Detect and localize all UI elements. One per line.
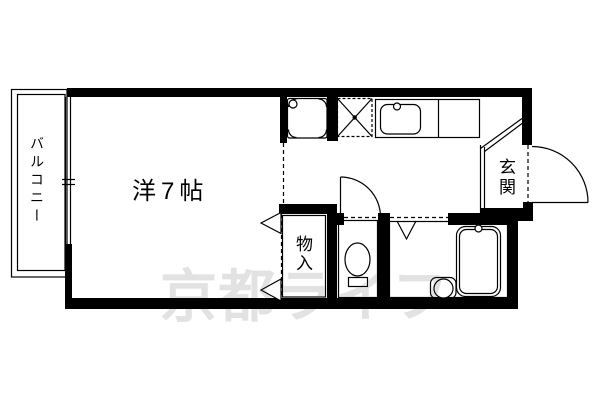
wall-genkan-step-corner <box>523 202 533 209</box>
kitchen-counter-icon <box>376 100 480 138</box>
wall-toilet-stub <box>335 213 344 225</box>
bathtub-icon <box>457 225 501 297</box>
balcony-window-icon <box>62 97 75 244</box>
wall-washer-mid <box>327 97 338 141</box>
kitchen-sink-icon <box>381 103 421 134</box>
washing-machine-pan-icon <box>288 99 328 139</box>
site-watermark: 京都ライフ <box>160 269 450 326</box>
toilet-door-icon <box>341 177 381 217</box>
wall-right-upper <box>522 88 532 145</box>
wall-washer-left <box>280 97 287 143</box>
bath-door-mark-icon <box>397 221 416 239</box>
entrance-label: 玄関 <box>497 158 514 198</box>
balcony-label: バルコニー <box>30 136 44 226</box>
western-room-label: 洋7帖 <box>132 180 208 204</box>
floorplan-canvas: バルコニー 洋7帖 玄関 物入 京都ライフ <box>0 0 600 400</box>
wall-genkan-bottom <box>480 208 533 221</box>
wall-top <box>67 88 532 97</box>
floorplan-drawing <box>0 0 600 400</box>
washer-drain-pan-icon <box>338 99 373 137</box>
entrance-door-icon <box>528 145 588 203</box>
wall-bath-right <box>508 221 518 299</box>
